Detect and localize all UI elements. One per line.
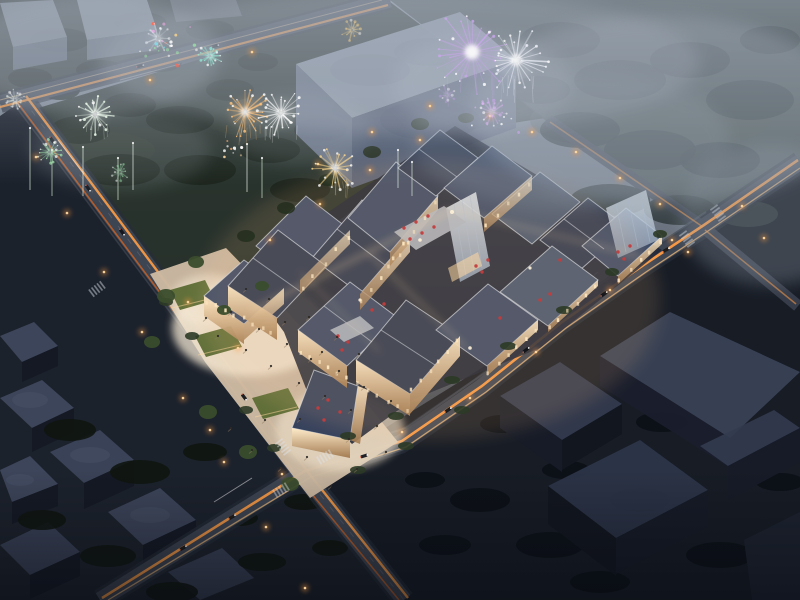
scene-canvas [0, 0, 800, 600]
aerial-night-rendering [0, 0, 800, 600]
